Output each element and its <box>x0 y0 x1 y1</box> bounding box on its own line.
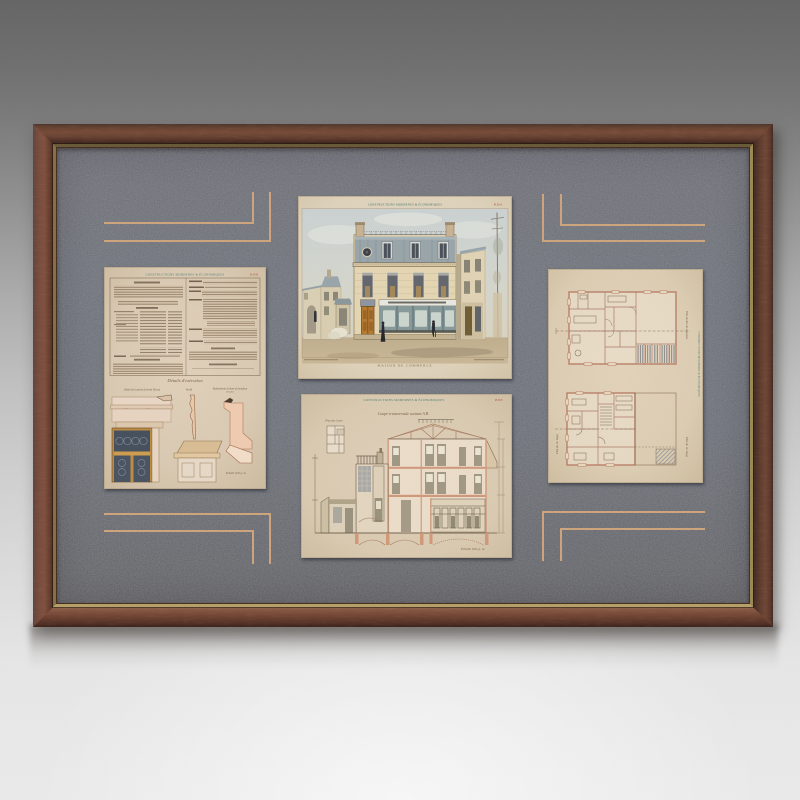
svg-text:Pl.30 A: Pl.30 A <box>494 203 502 206</box>
svg-text:CONSTRUCTIONS MODERNES & ÉCONO: CONSTRUCTIONS MODERNES & ÉCONOMIQUES <box>368 202 443 207</box>
svg-text:Échelle 0,05 p. m.: Échelle 0,05 p. m. <box>225 472 246 475</box>
svg-text:(Profil): (Profil) <box>226 391 233 394</box>
svg-text:Coupe transversale suivant A B: Coupe transversale suivant A B <box>378 411 429 416</box>
svg-text:Plan des Caves: Plan des Caves <box>324 420 342 423</box>
svg-text:Détails d'exécution: Détails d'exécution <box>166 378 203 383</box>
svg-text:Plan du Rez-de-chaussée: Plan du Rez-de-chaussée <box>685 310 688 340</box>
svg-text:Plan du 1er étage: Plan du 1er étage <box>556 433 559 455</box>
svg-text:Pl.30 C: Pl.30 C <box>495 399 503 402</box>
svg-text:Plan du 1er étage: Plan du 1er étage <box>685 436 688 458</box>
svg-text:Pl.30 B: Pl.30 B <box>250 274 258 277</box>
svg-text:MAISON DE COMMERCE: MAISON DE COMMERCE <box>377 363 432 367</box>
svg-text:CONSTRUCTIONS MODERNES & ÉCONO: CONSTRUCTIONS MODERNES & ÉCONOMIQUES <box>364 397 445 402</box>
svg-text:CONSTRUCTIONS MODERNES & ÉCONO: CONSTRUCTIONS MODERNES & ÉCONOMIQUES <box>146 272 225 277</box>
svg-text:CONSTRUCTIONS MODERNES & ÉCONO: CONSTRUCTIONS MODERNES & ÉCONOMIQUES <box>697 331 700 397</box>
svg-text:Profil: Profil <box>185 389 192 392</box>
svg-text:Détail de la porte d'entrée (F: Détail de la porte d'entrée (Face) <box>123 389 160 392</box>
